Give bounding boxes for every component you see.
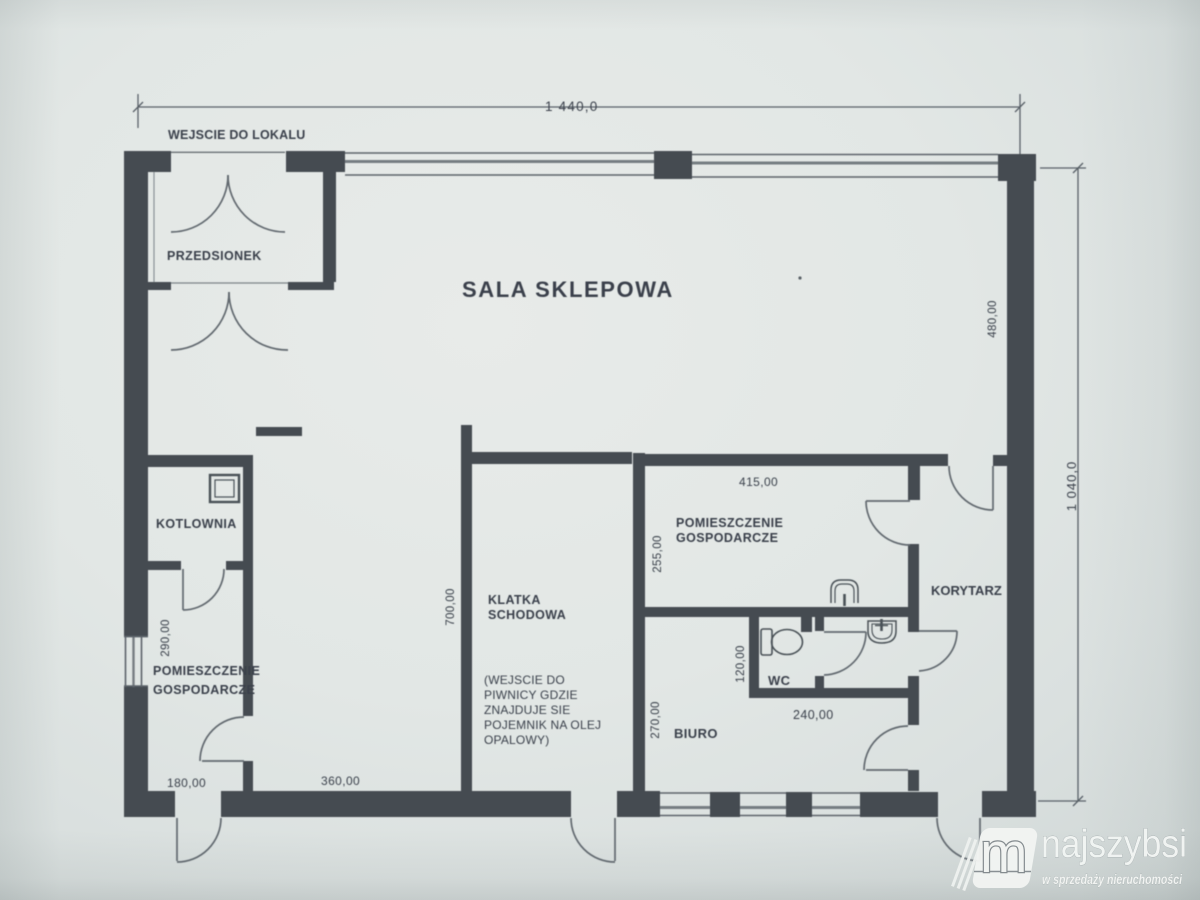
svg-text:415,00: 415,00 bbox=[739, 475, 778, 489]
svg-text:240,00: 240,00 bbox=[793, 708, 834, 722]
svg-text:180,00: 180,00 bbox=[167, 776, 206, 790]
svg-text:BIURO: BIURO bbox=[674, 726, 718, 741]
svg-text:POJEMNIK NA OLEJ: POJEMNIK NA OLEJ bbox=[484, 718, 601, 732]
svg-text:360,00: 360,00 bbox=[321, 774, 360, 788]
svg-text:WC: WC bbox=[768, 673, 791, 688]
svg-text:120,00: 120,00 bbox=[735, 645, 747, 683]
svg-text:najszybsi: najszybsi bbox=[1041, 823, 1187, 866]
svg-text:SALA SKLEPOWA: SALA SKLEPOWA bbox=[462, 277, 674, 302]
svg-text:1 040,0: 1 040,0 bbox=[1064, 461, 1079, 511]
svg-text:PIWNICY GDZIE: PIWNICY GDZIE bbox=[484, 688, 578, 702]
svg-text:ZNAJDUJE SIE: ZNAJDUJE SIE bbox=[484, 703, 570, 717]
svg-text:SCHODOWA: SCHODOWA bbox=[488, 608, 566, 622]
svg-text:POMIESZCZENIE: POMIESZCZENIE bbox=[676, 516, 783, 530]
svg-text:255,00: 255,00 bbox=[652, 535, 664, 573]
svg-text:PRZEDSIONEK: PRZEDSIONEK bbox=[167, 249, 262, 263]
svg-text:1 440,0: 1 440,0 bbox=[545, 99, 598, 114]
svg-text:OPALOWY): OPALOWY) bbox=[484, 733, 549, 747]
svg-text:POMIESZCZENIE: POMIESZCZENIE bbox=[153, 664, 260, 678]
svg-text:290,00: 290,00 bbox=[160, 619, 172, 657]
svg-text:GOSPODARCZE: GOSPODARCZE bbox=[153, 683, 255, 697]
svg-text:KLATKA: KLATKA bbox=[488, 593, 541, 607]
svg-text:700,00: 700,00 bbox=[445, 588, 457, 626]
svg-text:w sprzedaży nieruchomości: w sprzedaży nieruchomości bbox=[1042, 872, 1182, 887]
svg-text:WEJSCIE DO LOKALU: WEJSCIE DO LOKALU bbox=[168, 128, 305, 142]
svg-text:KORYTARZ: KORYTARZ bbox=[931, 583, 1002, 598]
svg-text:GOSPODARCZE: GOSPODARCZE bbox=[676, 531, 778, 545]
svg-text:480,00: 480,00 bbox=[987, 300, 999, 338]
svg-text:m: m bbox=[980, 821, 1027, 885]
svg-text:270,00: 270,00 bbox=[650, 701, 662, 739]
svg-text:KOTLOWNIA: KOTLOWNIA bbox=[156, 517, 237, 531]
svg-text:(WEJSCIE DO: (WEJSCIE DO bbox=[484, 673, 565, 687]
